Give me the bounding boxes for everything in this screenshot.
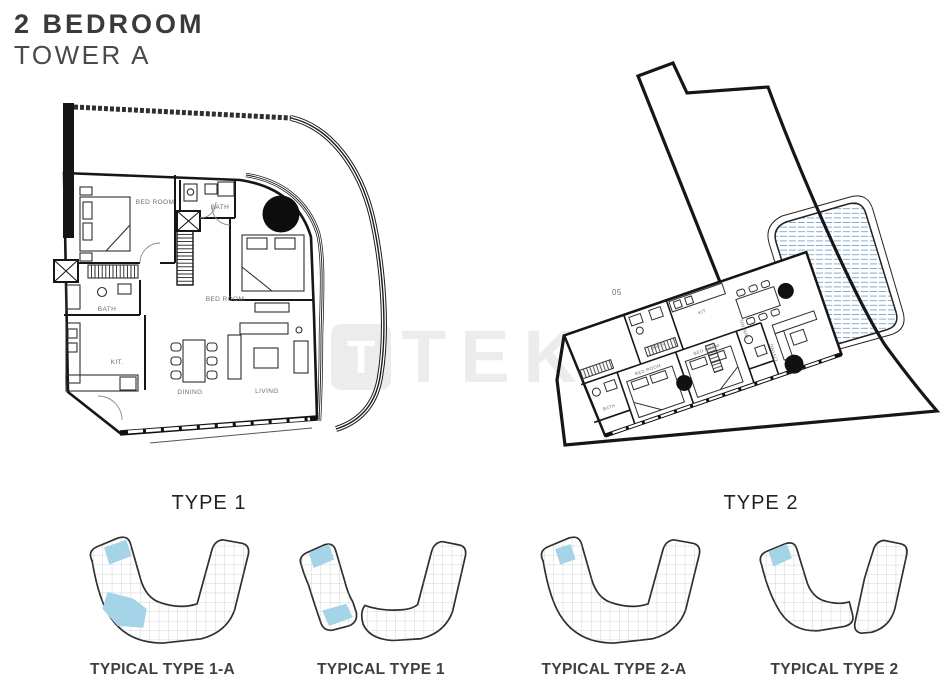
building-outline: [760, 540, 907, 633]
footprint-label: TYPICAL TYPE 1: [281, 661, 481, 679]
footprint-typical-type-2a: TYPICAL TYPE 2-A: [503, 527, 725, 679]
room-label-bedroom1: BED ROOM: [136, 199, 175, 206]
footprint-typical-type-1a: TYPICAL TYPE 1-A: [50, 527, 275, 679]
type2-caption: TYPE 2: [691, 492, 831, 515]
floorplan-sheet: 2 BEDROOM TOWER A T TEKCE: [0, 0, 949, 692]
room-label-bath1: BATH: [211, 204, 229, 211]
building-outline: [90, 537, 248, 643]
room-label-dining: DINING: [177, 389, 202, 396]
room-label-living: LIVING: [255, 388, 279, 395]
building-outline: [541, 537, 699, 643]
unit-number: 05: [612, 288, 622, 297]
footprint-typical-type-2: TYPICAL TYPE 2: [731, 527, 938, 679]
page-title: 2 BEDROOM: [14, 8, 205, 40]
header: 2 BEDROOM TOWER A: [14, 8, 205, 72]
plan2-unit: BATH KIT BED ROOM BED ROOM BATH DINING L…: [564, 252, 842, 441]
footprint-label: TYPICAL TYPE 1-A: [50, 661, 275, 679]
footprint-typical-type-1: TYPICAL TYPE 1: [281, 527, 481, 679]
floorplan-type1: BED ROOM BATH BED ROOM BATH KIT. DINING …: [50, 85, 400, 465]
room-label-bath2: BATH: [98, 306, 116, 313]
page-subtitle: TOWER A: [14, 40, 205, 71]
room-label-bedroom2: BED ROOM: [206, 296, 245, 303]
room-label-kitchen: KIT.: [111, 359, 124, 366]
floorplan-type2: 05: [540, 50, 945, 470]
type1-caption: TYPE 1: [139, 492, 279, 515]
footprint-label: TYPICAL TYPE 2-A: [503, 661, 725, 679]
plan1-round-tub: [263, 196, 300, 233]
footprint-label: TYPICAL TYPE 2: [731, 661, 938, 679]
building-outline: [300, 542, 465, 641]
